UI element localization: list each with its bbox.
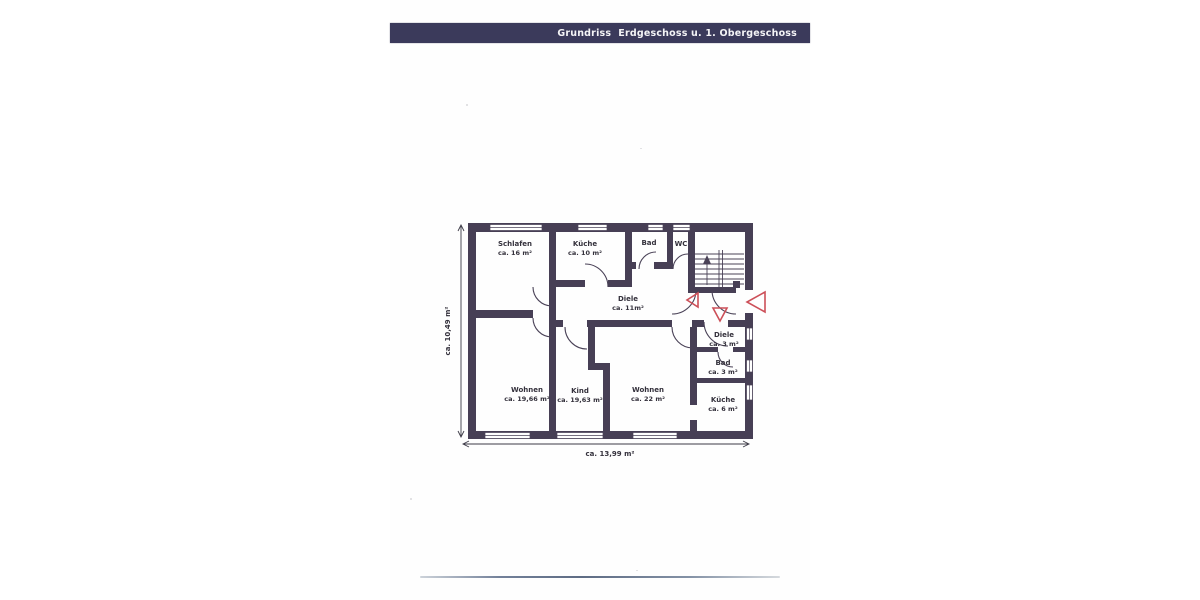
- room-label-kueche-og: Küche: [573, 240, 597, 248]
- room-area-kind: ca. 19,63 m²: [557, 396, 603, 404]
- room-area-diele-og: ca. 11m²: [612, 304, 644, 312]
- page-title: Grundriss Erdgeschoss u. 1. Obergeschoss: [557, 28, 810, 39]
- floor-plan-svg: Schlafen ca. 16 m² Küche ca. 10 m² Bad W…: [440, 210, 780, 470]
- room-area-bad-eg: ca. 3 m²: [708, 368, 738, 376]
- room-label-kueche-eg: Küche: [711, 396, 735, 404]
- room-label-diele-og: Diele: [618, 295, 638, 303]
- room-label-schlafen: Schlafen: [498, 240, 532, 248]
- entrance-marker-small-left: [687, 293, 698, 307]
- room-label-bad-eg: Bad: [715, 359, 730, 367]
- room-area-wohnen-mitte: ca. 22 m²: [631, 395, 665, 403]
- entrance-marker-down: [713, 308, 727, 321]
- room-area-kueche-og: ca. 10 m²: [568, 249, 602, 257]
- footer-rule: [420, 576, 780, 578]
- room-area-schlafen: ca. 16 m²: [498, 249, 532, 257]
- scan-speck: [410, 498, 412, 500]
- scan-speck: [636, 570, 638, 571]
- room-area-diele-eg: ca. 3 m²: [709, 340, 739, 348]
- room-label-wc: WC: [675, 240, 688, 248]
- room-area-kueche-eg: ca. 6 m²: [708, 405, 738, 413]
- room-label-wohnen-mitte: Wohnen: [632, 386, 664, 394]
- title-bar: Grundriss Erdgeschoss u. 1. Obergeschoss: [390, 23, 810, 43]
- dimension-height-label: ca. 10,49 m²: [444, 307, 452, 356]
- room-area-wohnen-links: ca. 19,66 m²: [504, 395, 550, 403]
- dimension-width-label: ca. 13,99 m²: [586, 450, 635, 458]
- entrance-marker-large-left: [747, 292, 765, 312]
- scan-speck: [466, 104, 468, 106]
- room-label-kind: Kind: [571, 387, 589, 395]
- scanned-document: Grundriss Erdgeschoss u. 1. Obergeschoss: [0, 0, 1200, 600]
- floor-plan: Schlafen ca. 16 m² Küche ca. 10 m² Bad W…: [440, 210, 780, 470]
- room-label-diele-eg: Diele: [714, 331, 734, 339]
- document-page: Grundriss Erdgeschoss u. 1. Obergeschoss: [390, 0, 810, 600]
- room-label-bad-og: Bad: [641, 239, 656, 247]
- entrance-markers: [687, 292, 765, 321]
- stairs-up-arrow: [703, 255, 711, 264]
- scan-speck: [640, 148, 642, 149]
- room-label-wohnen-links: Wohnen: [511, 386, 543, 394]
